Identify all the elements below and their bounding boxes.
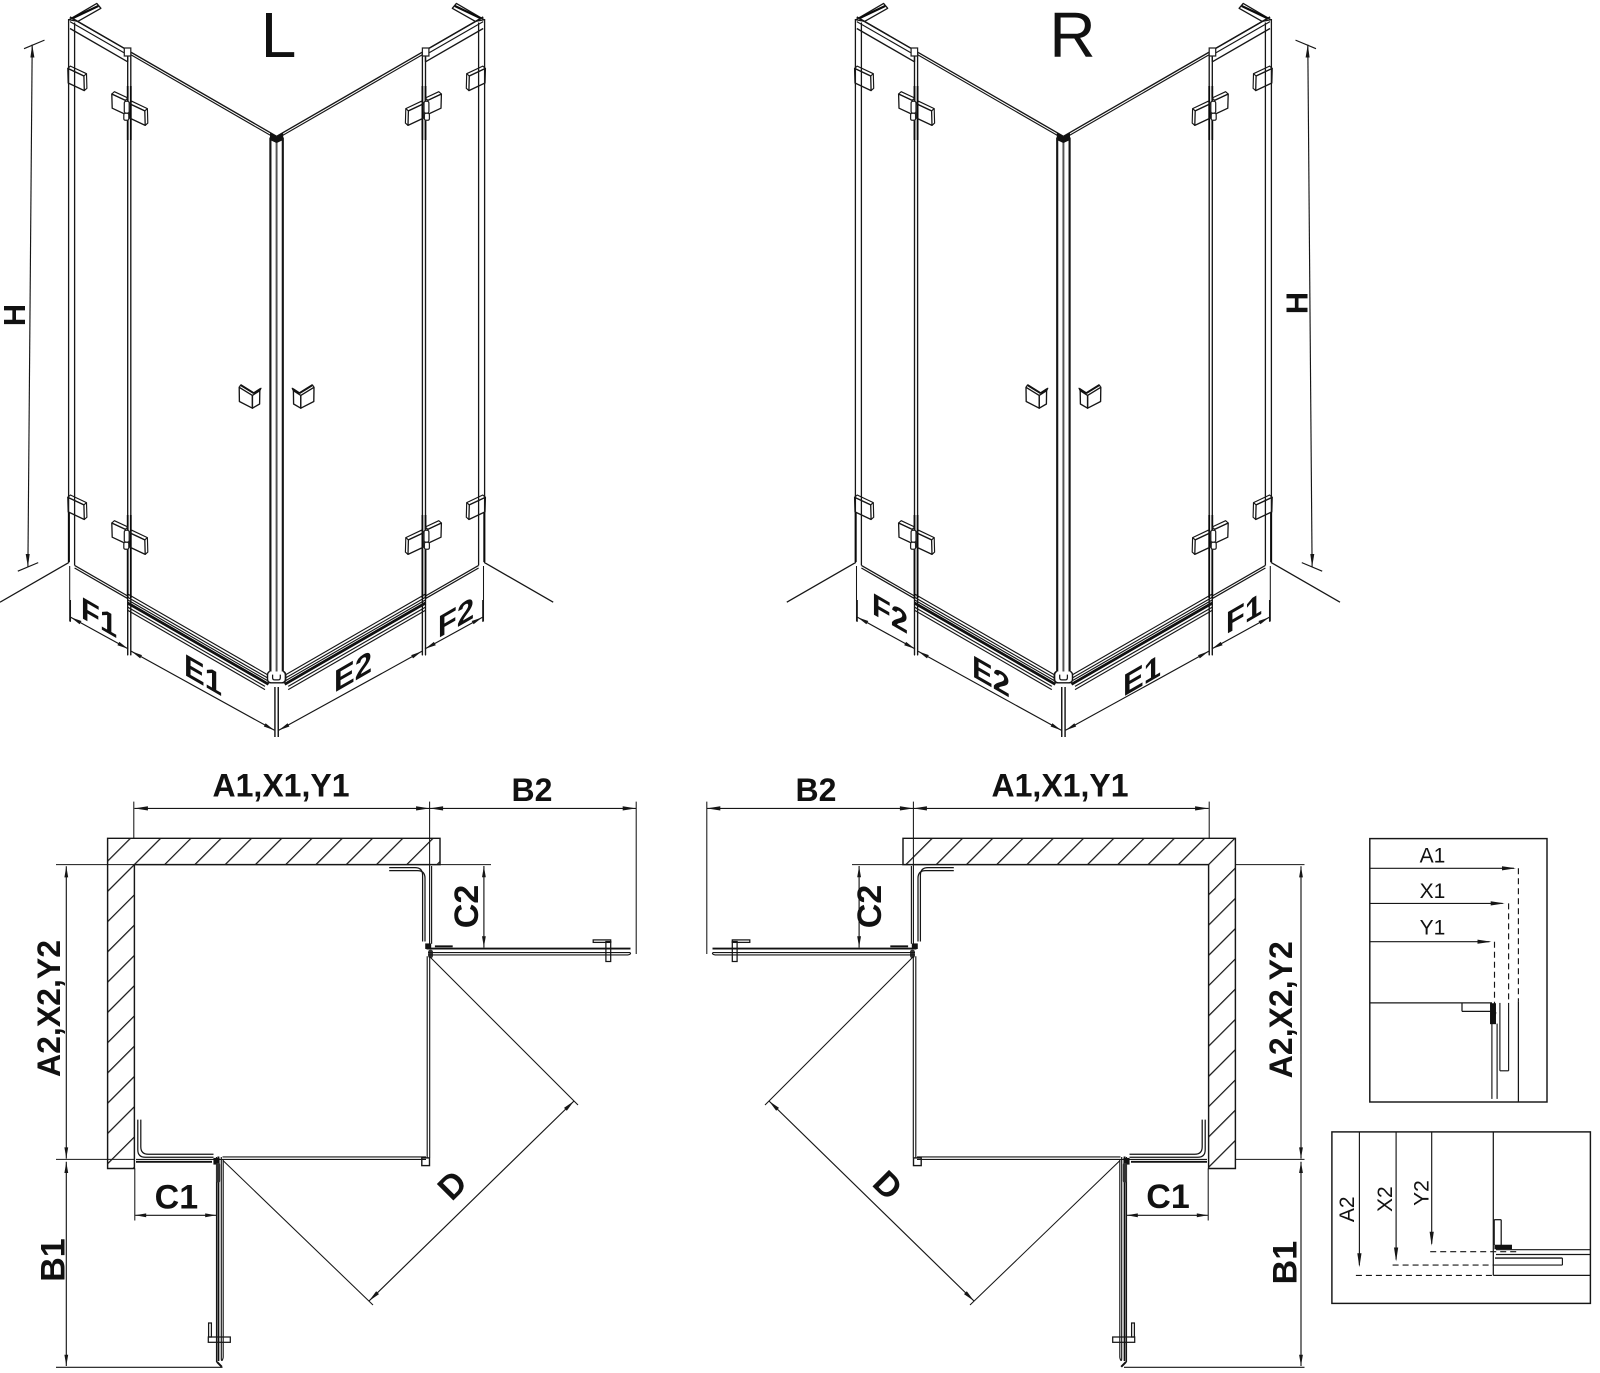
svg-text:X2: X2	[1374, 1186, 1397, 1212]
svg-text:C1: C1	[1146, 1178, 1189, 1216]
svg-text:C1: C1	[155, 1179, 198, 1217]
svg-text:H: H	[1280, 292, 1315, 314]
svg-text:C2: C2	[851, 885, 889, 928]
svg-text:L: L	[261, 0, 297, 71]
svg-text:R: R	[1049, 0, 1095, 71]
svg-text:B1: B1	[1267, 1241, 1305, 1284]
svg-text:A2,X2,Y2: A2,X2,Y2	[31, 940, 67, 1077]
svg-text:A1,X1,Y1: A1,X1,Y1	[213, 768, 350, 804]
svg-text:Y2: Y2	[1411, 1180, 1434, 1206]
svg-text:B2: B2	[512, 772, 553, 808]
svg-text:Y1: Y1	[1420, 917, 1446, 940]
svg-text:A2: A2	[1336, 1196, 1359, 1222]
svg-text:A1: A1	[1420, 845, 1446, 868]
svg-text:A1,X1,Y1: A1,X1,Y1	[992, 768, 1129, 804]
svg-text:C2: C2	[448, 885, 486, 928]
svg-text:B2: B2	[796, 772, 837, 808]
svg-text:H: H	[0, 304, 32, 326]
svg-text:B1: B1	[34, 1238, 72, 1281]
svg-text:A2,X2,Y2: A2,X2,Y2	[1263, 941, 1299, 1078]
svg-text:X1: X1	[1420, 880, 1446, 903]
